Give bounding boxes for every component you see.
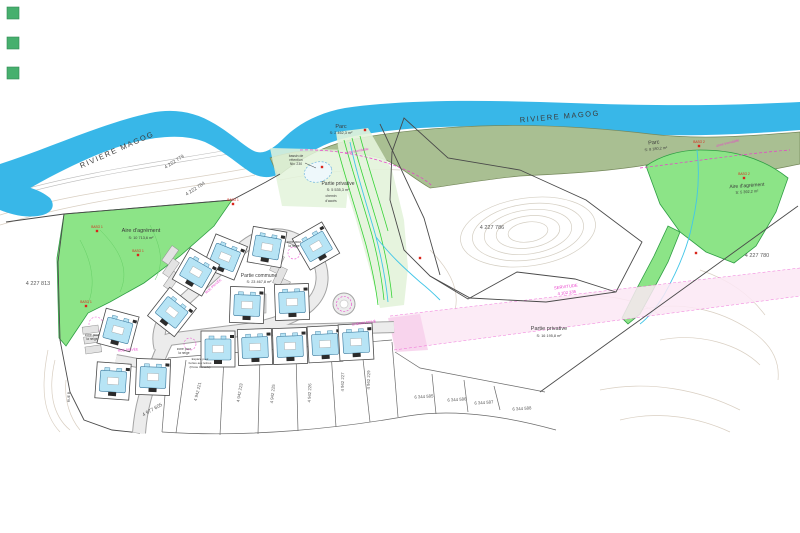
parc-left: Parc bbox=[335, 124, 347, 130]
building-porch bbox=[209, 336, 214, 339]
survey-marker-label: BASO 1 bbox=[227, 198, 239, 202]
lot-4227780: 4 227 780 bbox=[745, 253, 769, 259]
site-plan-svg: BASO 1BASO 1BASO 1BASO 1BASO 2BASO 2 RIV… bbox=[0, 0, 800, 533]
building-porch bbox=[144, 364, 149, 367]
lot-b2: 4 942 223 bbox=[235, 382, 243, 402]
survey-marker bbox=[419, 257, 421, 259]
building-shed bbox=[367, 327, 371, 330]
survey-marker bbox=[321, 166, 323, 168]
lot-b4: 4 942 226 bbox=[307, 383, 313, 403]
building-shed bbox=[267, 332, 271, 335]
building-shed bbox=[302, 331, 306, 334]
building-garage bbox=[322, 355, 330, 359]
swatch-2 bbox=[7, 37, 19, 49]
privative-1-area: S: 5 535,3 m² bbox=[327, 188, 351, 192]
building-porch bbox=[250, 292, 255, 295]
postes-3: (Poste Canada) bbox=[189, 365, 210, 369]
survey-marker bbox=[232, 203, 234, 205]
building-porch bbox=[260, 233, 265, 237]
building-label-chip bbox=[241, 301, 252, 308]
building-shed bbox=[259, 291, 263, 294]
building-porch bbox=[258, 334, 263, 337]
building-7 bbox=[274, 283, 309, 320]
building-porch bbox=[238, 292, 243, 295]
survey-marker bbox=[364, 129, 366, 131]
building-shed bbox=[126, 368, 130, 371]
building-porch bbox=[327, 331, 332, 334]
building-porch bbox=[272, 235, 277, 239]
commune: Partie commune bbox=[241, 273, 278, 279]
swatch-3 bbox=[7, 67, 19, 79]
building-porch bbox=[246, 334, 251, 337]
roundabout-island bbox=[340, 300, 348, 308]
building-label-chip bbox=[319, 340, 330, 348]
building-label-chip bbox=[284, 342, 295, 349]
building-9 bbox=[95, 362, 131, 400]
building-porch bbox=[358, 329, 363, 332]
lot-b1: 4 942 221 bbox=[193, 381, 203, 401]
privative-1: Partie privative bbox=[321, 181, 354, 187]
building-garage bbox=[353, 353, 361, 357]
survey-marker bbox=[96, 230, 98, 232]
building-porch bbox=[293, 333, 298, 336]
building-13 bbox=[272, 327, 307, 364]
lot-b5: 4 942 227 bbox=[340, 372, 345, 392]
building-label-chip bbox=[107, 377, 118, 385]
aire-left: Aire d'agrément bbox=[122, 228, 161, 234]
survey-marker-label: BASO 1 bbox=[132, 249, 144, 253]
building-12 bbox=[237, 328, 272, 365]
neige-1b: la neige bbox=[86, 337, 97, 341]
lot-4227786: 4 227 786 bbox=[480, 225, 504, 231]
neige-3b: la neige bbox=[288, 244, 299, 248]
building-garage bbox=[288, 313, 296, 317]
survey-marker bbox=[698, 145, 700, 147]
building-porch bbox=[156, 364, 161, 367]
lot-c4: 6 344 588 bbox=[512, 405, 532, 411]
chemin-acces-2: d'accès bbox=[325, 199, 337, 203]
building-porch bbox=[117, 368, 122, 371]
building-shed bbox=[165, 363, 169, 366]
bassin-3: Niv. 230 bbox=[290, 162, 302, 166]
building-garage bbox=[242, 316, 250, 320]
building-6 bbox=[229, 286, 264, 323]
survey-marker-label: BASO 1 bbox=[91, 225, 103, 229]
lot-c3: 6 344 587 bbox=[474, 399, 494, 405]
legend-swatches bbox=[7, 7, 19, 79]
survey-marker bbox=[695, 252, 697, 254]
building-garage bbox=[148, 388, 156, 392]
building-porch bbox=[281, 333, 286, 336]
lot-c1: 6 344 585 bbox=[414, 393, 434, 399]
building-porch bbox=[105, 367, 110, 370]
building-15 bbox=[338, 323, 374, 361]
building-10 bbox=[135, 358, 170, 395]
building-shed bbox=[304, 287, 308, 290]
building-label-chip bbox=[147, 373, 158, 380]
building-label-chip bbox=[350, 338, 361, 346]
survey-marker bbox=[137, 254, 139, 256]
building-shed bbox=[230, 335, 234, 338]
lot-b3: 4 942 225 bbox=[269, 383, 276, 403]
building-label-chip bbox=[249, 343, 260, 350]
lot-4222784: 4 222 784 bbox=[184, 180, 206, 197]
building-porch bbox=[315, 331, 320, 334]
building-label-chip bbox=[286, 298, 297, 305]
privative-2: Partie privative bbox=[531, 326, 567, 332]
building-porch bbox=[221, 336, 226, 339]
lot-4222779: 4 222 779 bbox=[163, 153, 185, 170]
lot-4227813: 4 227 813 bbox=[26, 281, 50, 287]
commune-area: S: 23 467,8 m² bbox=[247, 280, 273, 284]
survey-marker-label: BASO 2 bbox=[693, 140, 705, 144]
building-label-chip bbox=[213, 346, 224, 353]
building-garage bbox=[286, 357, 294, 361]
lot-c2: 6 344 586 bbox=[447, 396, 467, 402]
parc-left-area: S: 2 462,3 m² bbox=[330, 131, 354, 135]
building-garage bbox=[214, 360, 222, 364]
privative-2-area: S: 16 195,8 m² bbox=[537, 334, 563, 338]
building-2 bbox=[247, 226, 287, 267]
survey-marker-label: BASO 1 bbox=[80, 300, 92, 304]
lot-b6: 4 942 229 bbox=[366, 370, 371, 390]
building-8 bbox=[97, 308, 139, 352]
swatch-1 bbox=[7, 7, 19, 19]
survey-marker-label: BASO 2 bbox=[738, 172, 750, 176]
building-garage bbox=[251, 358, 259, 362]
site-plan-canvas: BASO 1BASO 1BASO 1BASO 1BASO 2BASO 2 RIV… bbox=[0, 0, 800, 533]
survey-marker bbox=[85, 305, 87, 307]
survey-marker bbox=[743, 177, 745, 179]
building-porch bbox=[346, 329, 351, 332]
parc-right: Parc bbox=[648, 139, 660, 146]
building-porch bbox=[283, 289, 288, 292]
big-lot-contours bbox=[456, 189, 600, 275]
building-14 bbox=[307, 325, 343, 363]
neige-2b: la neige bbox=[178, 351, 189, 355]
chemin-acces-1: chemin bbox=[326, 194, 337, 198]
building-garage bbox=[108, 392, 116, 397]
aire-left-area: S: 10 713,6 m² bbox=[129, 236, 155, 240]
building-porch bbox=[295, 289, 300, 292]
river-pool-shape bbox=[0, 184, 53, 217]
rue-4: RUE B bbox=[67, 391, 71, 402]
